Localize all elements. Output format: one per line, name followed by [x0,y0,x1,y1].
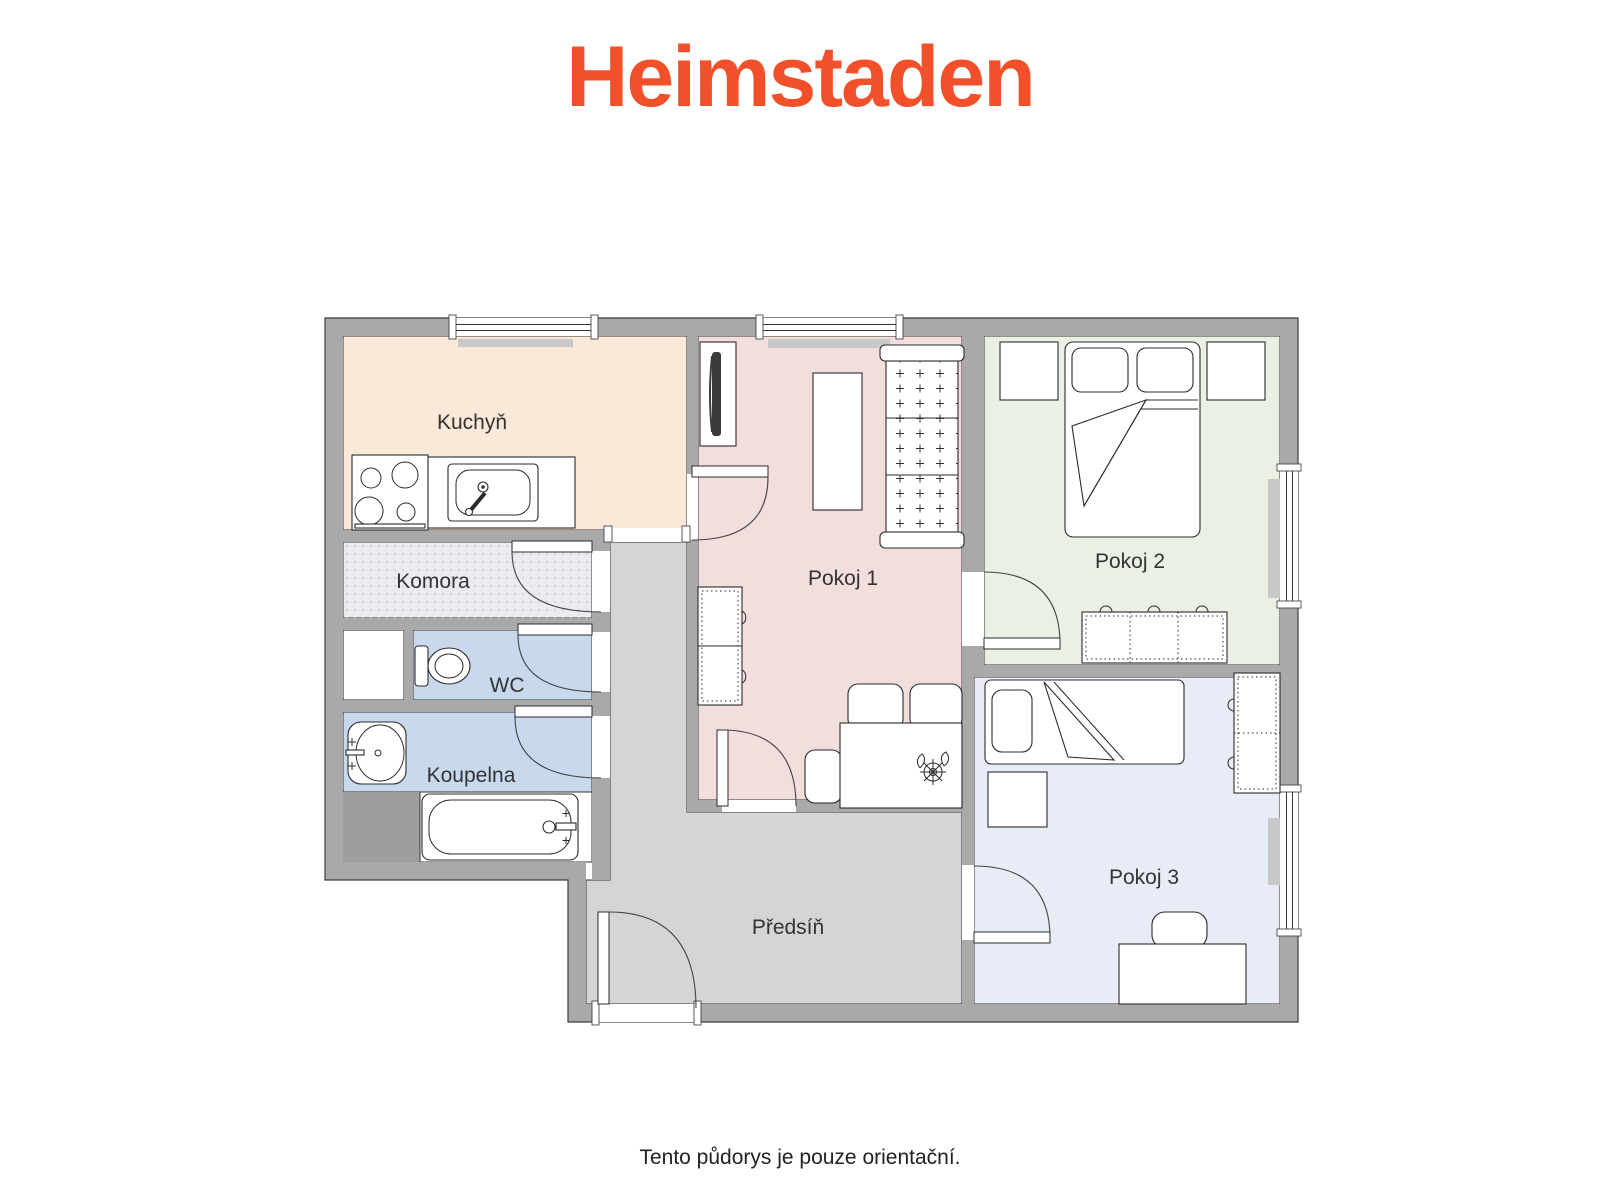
bathtub-icon [422,794,578,860]
kitchen-window-icon [449,315,598,339]
radiator-icon [1268,818,1280,885]
pillow-icon [1072,348,1128,392]
room-komora-label: Komora [396,570,470,593]
pillow-icon [1137,348,1193,392]
kitchen-sink-icon [428,457,575,528]
chair-icon [848,684,903,729]
nightstand-icon [1000,342,1058,400]
tv-icon [700,342,736,446]
disclaimer-text: Tento půdorys je pouze orientační. [0,1146,1600,1170]
chair-icon [910,684,962,729]
nightstand-icon [1207,342,1265,400]
nightstand-icon [988,772,1047,827]
room-koupelna-label: Koupelna [427,764,516,787]
room-kuchyn-label: Kuchyň [437,411,507,434]
wardrobe-icon [698,587,746,705]
room-predsin-label: Předsíň [752,916,824,939]
floorplan: Kuchyň Komora WC Koupelna Pokoj 1 Pokoj … [0,0,1600,1200]
sofa-icon [880,345,964,548]
coffee-table-icon [813,373,862,510]
radiator-icon [1268,479,1280,598]
pillow-icon [992,690,1032,752]
washbasin-icon [346,722,406,784]
koupelna-gray-zone [343,792,420,862]
toilet-icon [415,646,470,686]
wardrobe-icon [1082,606,1227,663]
room-pokoj3-label: Pokoj 3 [1109,866,1179,889]
chair-icon [805,750,842,803]
radiator-icon [458,339,573,347]
single-bed-icon [985,680,1184,764]
desk-chair-icon [1152,912,1207,948]
room-pokoj1-label: Pokoj 1 [808,567,878,590]
wc-shaft [343,630,404,700]
room-wc-label: WC [490,674,525,697]
pokoj3-window-icon [1277,785,1301,936]
radiator-icon [768,339,890,348]
wardrobe-icon [1228,673,1280,793]
pokoj1-window-icon [756,315,903,339]
room-pokoj2-label: Pokoj 2 [1095,550,1165,573]
pokoj2-window-icon [1277,464,1301,608]
stove-icon [352,455,428,530]
